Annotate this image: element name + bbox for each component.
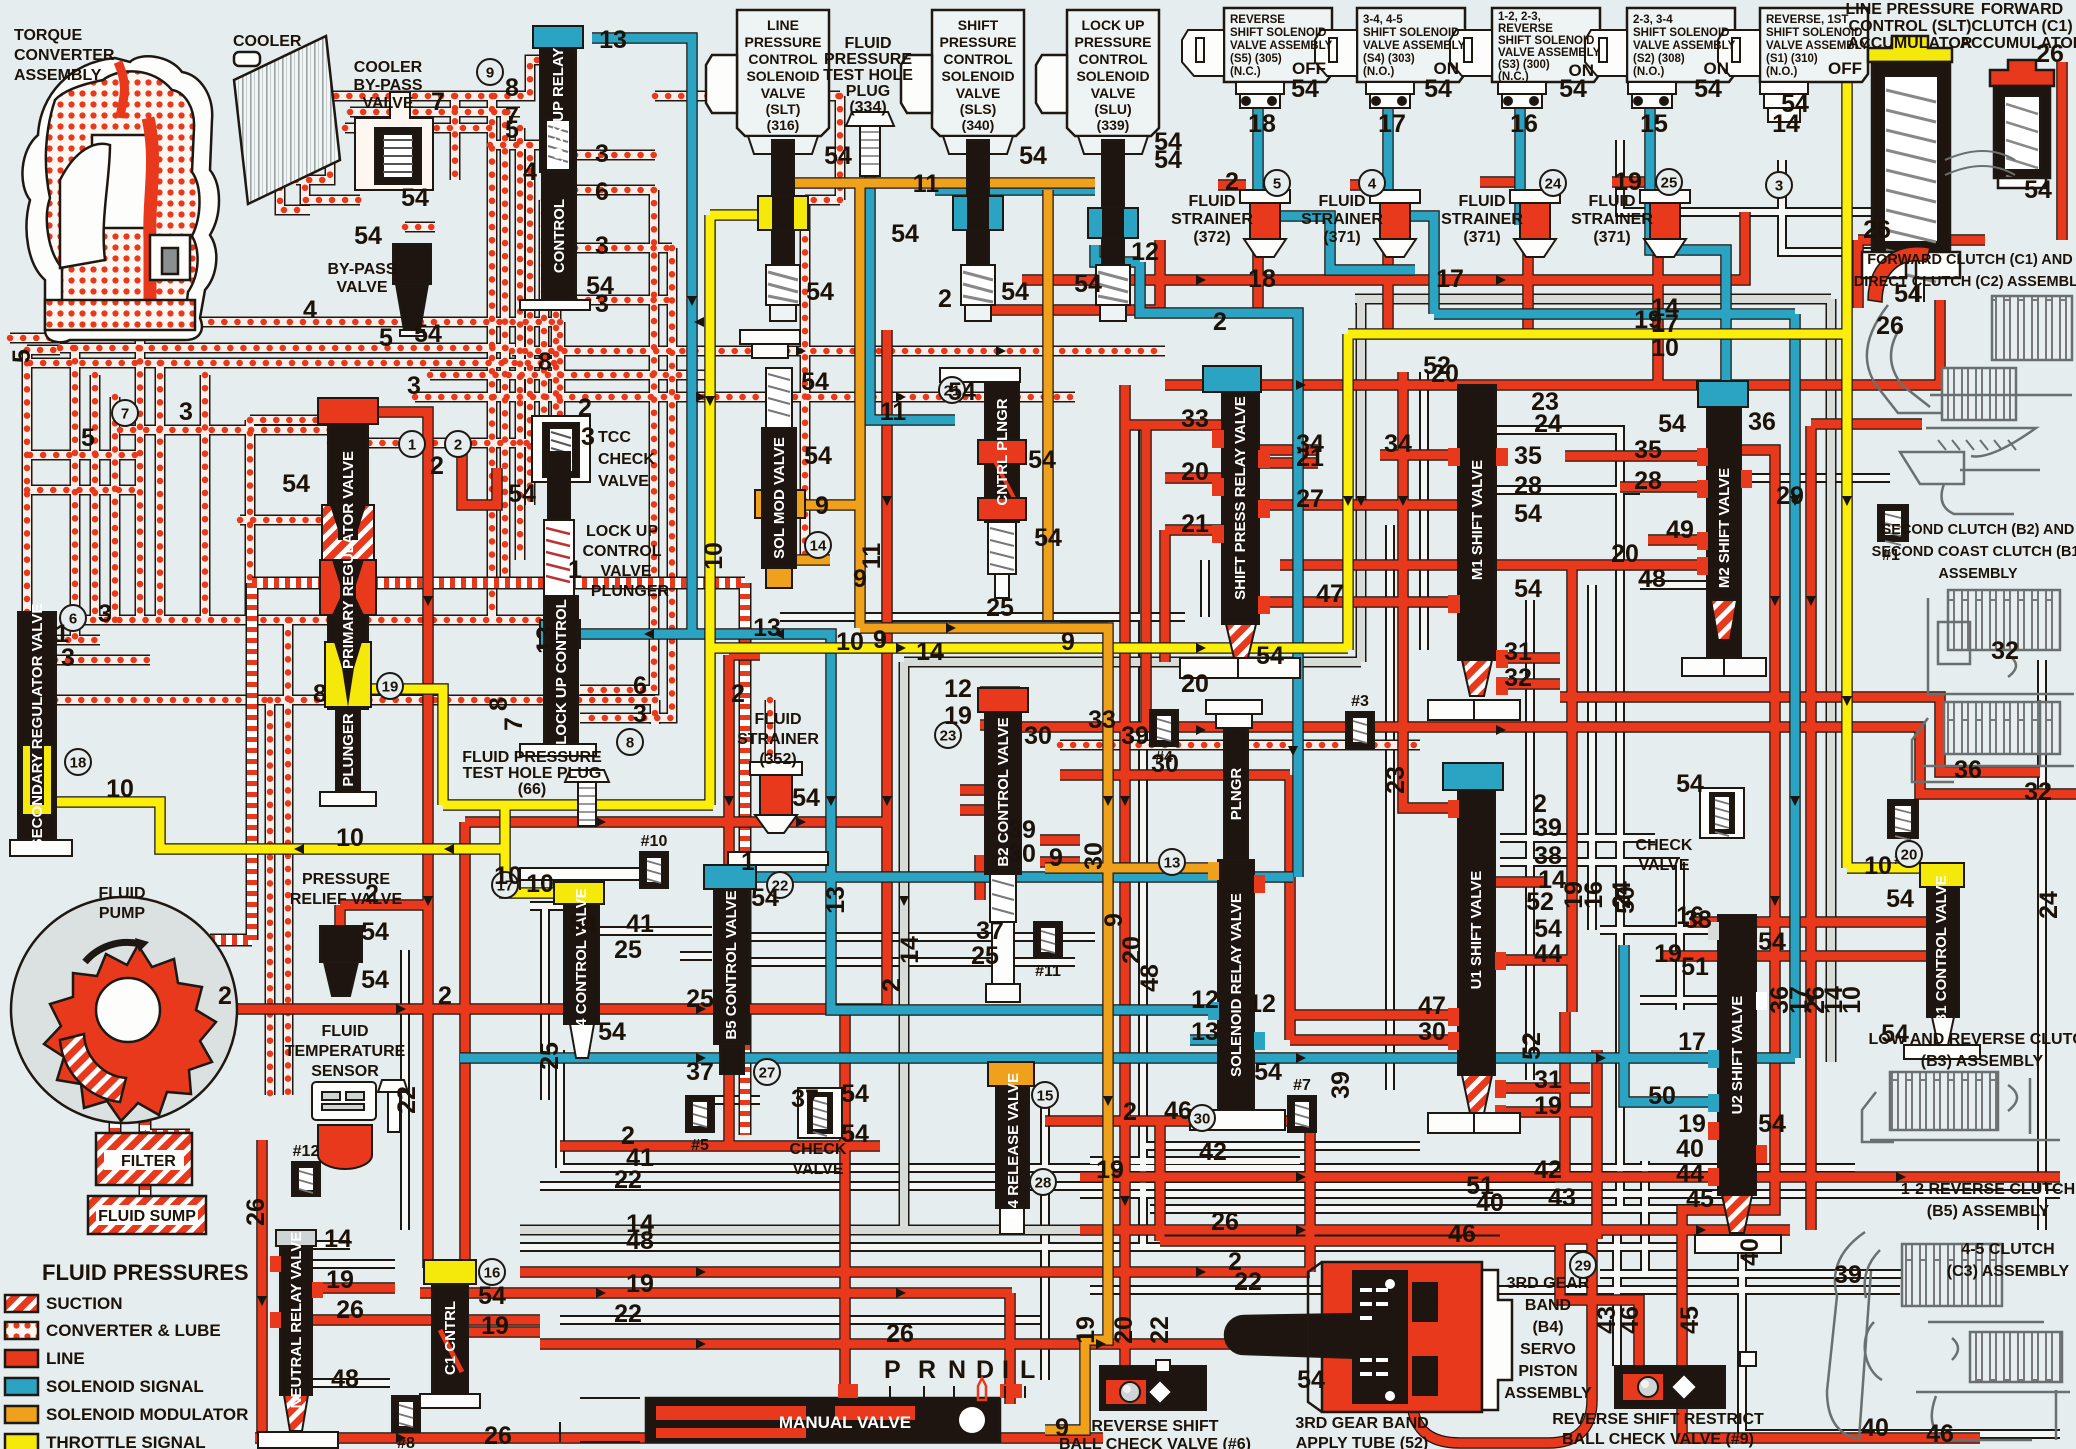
svg-text:FLUID: FLUID — [1318, 193, 1365, 210]
svg-text:10: 10 — [494, 862, 522, 890]
svg-text:LINE: LINE — [767, 17, 799, 33]
svg-text:18: 18 — [1248, 265, 1276, 293]
svg-text:30: 30 — [1418, 1018, 1446, 1046]
svg-text:SHIFT PRESS RELAY VALVE: SHIFT PRESS RELAY VALVE — [1232, 396, 1249, 600]
svg-text:54: 54 — [801, 368, 829, 396]
svg-text:54: 54 — [361, 918, 389, 946]
svg-text:#11: #11 — [1035, 963, 1061, 980]
svg-text:SHIFT SOLENOID: SHIFT SOLENOID — [1633, 27, 1729, 39]
svg-text:3: 3 — [1775, 178, 1783, 195]
svg-text:1: 1 — [408, 437, 416, 454]
svg-text:48: 48 — [331, 1365, 359, 1393]
svg-text:7: 7 — [431, 88, 445, 116]
svg-text:29: 29 — [1776, 482, 1804, 510]
svg-text:CONTROL: CONTROL — [748, 51, 818, 67]
svg-text:SERVO: SERVO — [1520, 1341, 1576, 1358]
svg-text:PRESSURE: PRESSURE — [939, 34, 1016, 50]
svg-text:2-3, 3-4: 2-3, 3-4 — [1633, 14, 1673, 26]
svg-text:SHIFT SOLENOID: SHIFT SOLENOID — [1498, 35, 1594, 47]
svg-text:CONTROL: CONTROL — [943, 51, 1013, 67]
svg-text:19: 19 — [382, 679, 399, 696]
svg-text:1: 1 — [568, 556, 582, 584]
svg-text:47: 47 — [1418, 992, 1446, 1020]
svg-text:25: 25 — [971, 942, 999, 970]
svg-text:54: 54 — [1034, 524, 1062, 552]
svg-text:VALVE: VALVE — [337, 279, 388, 296]
svg-text:VALVE ASSEMBLY: VALVE ASSEMBLY — [1498, 47, 1601, 59]
svg-text:SENSOR: SENSOR — [311, 1063, 379, 1080]
svg-text:54: 54 — [361, 966, 389, 994]
svg-text:54: 54 — [891, 220, 919, 248]
svg-text:REVERSE SHIFT: REVERSE SHIFT — [1091, 1418, 1218, 1435]
svg-text:CONTROL: CONTROL — [1078, 51, 1148, 67]
svg-text:14: 14 — [916, 638, 944, 666]
svg-text:22: 22 — [614, 1166, 642, 1194]
svg-text:FORWARD: FORWARD — [1981, 1, 2063, 18]
svg-text:10: 10 — [1838, 986, 1866, 1014]
svg-text:3: 3 — [581, 423, 595, 451]
svg-text:28: 28 — [1035, 1175, 1052, 1192]
svg-text:(372): (372) — [1193, 229, 1230, 246]
svg-text:54: 54 — [1154, 146, 1182, 174]
svg-text:54: 54 — [1758, 1110, 1786, 1138]
svg-text:4: 4 — [1368, 176, 1377, 193]
svg-text:BALL CHECK VALVE (#6): BALL CHECK VALVE (#6) — [1059, 1436, 1251, 1449]
svg-text:15: 15 — [1037, 1088, 1054, 1105]
svg-text:CONTROL (SLT): CONTROL (SLT) — [1849, 18, 1972, 35]
svg-text:52: 52 — [1518, 1032, 1546, 1060]
svg-text:PRESSURE: PRESSURE — [824, 51, 912, 68]
svg-text:16: 16 — [484, 1265, 501, 1282]
svg-text:20: 20 — [1181, 670, 1209, 698]
svg-text:CNTRL PLNGR: CNTRL PLNGR — [994, 398, 1011, 505]
svg-text:17: 17 — [1678, 1028, 1706, 1056]
svg-text:11: 11 — [880, 398, 907, 426]
svg-text:TORQUE: TORQUE — [14, 27, 82, 44]
svg-text:3: 3 — [595, 290, 609, 318]
svg-text:LOCK UP RELAY: LOCK UP RELAY — [550, 48, 567, 169]
svg-text:10: 10 — [1864, 852, 1892, 880]
svg-text:26: 26 — [1876, 312, 1904, 340]
svg-text:THROTTLE SIGNAL: THROTTLE SIGNAL — [46, 1433, 206, 1449]
svg-text:N: N — [948, 1356, 966, 1384]
svg-text:54: 54 — [1256, 642, 1284, 670]
svg-text:23: 23 — [940, 728, 957, 745]
svg-text:LOCK UP: LOCK UP — [586, 523, 658, 540]
svg-text:11: 11 — [913, 170, 940, 198]
svg-text:20: 20 — [1181, 458, 1209, 486]
svg-text:42: 42 — [1199, 1138, 1227, 1166]
svg-text:ASSEMBLY: ASSEMBLY — [1938, 566, 2018, 582]
svg-text:26: 26 — [886, 1320, 914, 1348]
svg-text:REVERSE: REVERSE — [1498, 23, 1553, 35]
svg-text:VALVE: VALVE — [363, 95, 414, 112]
svg-text:6: 6 — [633, 672, 647, 700]
svg-text:54: 54 — [1514, 500, 1542, 528]
svg-text:54: 54 — [1001, 278, 1029, 306]
svg-text:2: 2 — [878, 978, 906, 992]
svg-text:9: 9 — [1061, 628, 1075, 656]
svg-text:39: 39 — [1834, 1261, 1862, 1289]
svg-text:13: 13 — [753, 614, 781, 642]
svg-text:STRAINER: STRAINER — [1571, 211, 1653, 228]
svg-text:VALVE: VALVE — [793, 1161, 844, 1178]
svg-text:6: 6 — [69, 611, 77, 628]
svg-text:FLUID: FLUID — [844, 35, 891, 52]
svg-text:46: 46 — [1926, 1420, 1954, 1448]
svg-text:25: 25 — [686, 985, 714, 1013]
svg-text:P: P — [884, 1356, 901, 1384]
svg-text:2: 2 — [438, 982, 452, 1010]
svg-text:12: 12 — [944, 675, 972, 703]
svg-text:3: 3 — [179, 398, 193, 426]
svg-text:24: 24 — [2035, 891, 2063, 919]
svg-text:(N.O.): (N.O.) — [1633, 66, 1664, 78]
svg-text:L: L — [1020, 1356, 1035, 1384]
svg-text:35: 35 — [1634, 436, 1662, 464]
svg-text:33: 33 — [1181, 405, 1209, 433]
svg-text:30: 30 — [1024, 722, 1052, 750]
svg-text:50: 50 — [1648, 1082, 1676, 1110]
svg-text:2: 2 — [454, 437, 462, 454]
svg-text:30: 30 — [1080, 842, 1108, 870]
svg-text:54: 54 — [1781, 90, 1809, 118]
svg-text:54: 54 — [1254, 1058, 1282, 1086]
svg-text:SOLENOID: SOLENOID — [1076, 68, 1149, 84]
svg-text:33: 33 — [1088, 706, 1116, 734]
svg-text:STRAINER: STRAINER — [1301, 211, 1383, 228]
svg-text:VALVE: VALVE — [1091, 85, 1136, 101]
svg-text:(371): (371) — [1463, 229, 1500, 246]
svg-text:SOLENOID RELAY VALVE: SOLENOID RELAY VALVE — [1228, 893, 1245, 1077]
svg-text:33: 33 — [1684, 906, 1712, 934]
svg-text:54: 54 — [1886, 885, 1914, 913]
svg-text:48: 48 — [1638, 565, 1666, 593]
svg-text:26: 26 — [1211, 1208, 1239, 1236]
svg-text:8: 8 — [626, 735, 634, 752]
svg-text:2: 2 — [218, 982, 232, 1010]
svg-text:54: 54 — [1559, 75, 1587, 103]
svg-text:14: 14 — [810, 538, 827, 555]
svg-text:5: 5 — [1273, 176, 1281, 193]
svg-text:4: 4 — [523, 158, 537, 186]
svg-text:PLNGR: PLNGR — [1228, 768, 1245, 821]
svg-text:ACCUMULATOR: ACCUMULATOR — [1848, 35, 1973, 52]
svg-text:54: 54 — [841, 1080, 869, 1108]
svg-text:9: 9 — [815, 492, 829, 520]
svg-text:27: 27 — [1296, 485, 1324, 513]
svg-text:TEST HOLE: TEST HOLE — [823, 67, 913, 84]
svg-text:19: 19 — [326, 1266, 354, 1294]
svg-text:BY-PASS: BY-PASS — [353, 77, 422, 94]
svg-text:DIRECT CLUTCH (C2) ASSEMBLY: DIRECT CLUTCH (C2) ASSEMBLY — [1854, 274, 2076, 290]
svg-text:20: 20 — [1901, 847, 1918, 864]
svg-text:VALVE: VALVE — [598, 473, 649, 490]
svg-text:12: 12 — [1191, 986, 1219, 1014]
svg-text:54: 54 — [948, 378, 976, 406]
svg-text:36: 36 — [1748, 408, 1776, 436]
svg-text:TEMPERATURE: TEMPERATURE — [285, 1043, 406, 1060]
svg-text:CLUTCH (C1): CLUTCH (C1) — [1971, 18, 2072, 35]
svg-text:U2 SHIFT VALVE: U2 SHIFT VALVE — [1729, 996, 1746, 1115]
svg-text:54: 54 — [1019, 142, 1047, 170]
svg-text:(S3) (300): (S3) (300) — [1498, 59, 1550, 71]
svg-text:32: 32 — [1504, 664, 1532, 692]
svg-text:19: 19 — [626, 1270, 654, 1298]
svg-text:8: 8 — [505, 74, 519, 102]
svg-text:48: 48 — [1136, 964, 1164, 992]
svg-text:SECONDARY REGULATOR VALVE: SECONDARY REGULATOR VALVE — [29, 604, 46, 849]
svg-text:45: 45 — [1686, 1185, 1714, 1213]
svg-text:3: 3 — [595, 232, 609, 260]
svg-text:16: 16 — [1510, 110, 1538, 138]
svg-text:21: 21 — [1296, 444, 1324, 472]
svg-text:3: 3 — [407, 372, 421, 400]
svg-text:RELIEF VALVE: RELIEF VALVE — [290, 891, 403, 908]
svg-text:32: 32 — [1991, 637, 2019, 665]
svg-text:APPLY TUBE (52): APPLY TUBE (52) — [1296, 1435, 1428, 1449]
svg-text:B4 RELEASE VALVE: B4 RELEASE VALVE — [1005, 1073, 1022, 1219]
svg-text:9: 9 — [486, 65, 494, 82]
svg-text:STRAINER: STRAINER — [1441, 211, 1523, 228]
svg-text:SECOND CLUTCH (B2) AND: SECOND CLUTCH (B2) AND — [1882, 522, 2075, 538]
svg-text:#1: #1 — [1882, 547, 1900, 564]
svg-text:40: 40 — [1736, 1238, 1764, 1266]
svg-text:PRESSURE: PRESSURE — [744, 34, 821, 50]
svg-text:24: 24 — [1545, 176, 1562, 193]
svg-text:FILTER: FILTER — [121, 1153, 176, 1170]
svg-text:(316): (316) — [767, 117, 800, 133]
svg-text:STRAINER: STRAINER — [737, 731, 819, 748]
svg-text:47: 47 — [1316, 580, 1344, 608]
svg-text:M2 SHIFT VALVE: M2 SHIFT VALVE — [1716, 468, 1733, 588]
svg-text:2: 2 — [938, 285, 952, 313]
svg-text:#5: #5 — [691, 1137, 709, 1154]
svg-text:SOLENOID: SOLENOID — [941, 68, 1014, 84]
svg-text:CONTROL: CONTROL — [582, 543, 661, 560]
svg-text:7: 7 — [500, 717, 528, 731]
svg-text:18: 18 — [1248, 110, 1276, 138]
svg-text:#8: #8 — [397, 1435, 415, 1449]
svg-text:(N.C.): (N.C.) — [1498, 71, 1529, 83]
svg-text:FLUID: FLUID — [321, 1023, 368, 1040]
svg-text:54: 54 — [401, 184, 429, 212]
svg-text:5: 5 — [8, 349, 36, 363]
svg-text:44: 44 — [1534, 940, 1562, 968]
svg-text:#3: #3 — [1351, 693, 1369, 710]
svg-text:FLUID PRESSURES: FLUID PRESSURES — [42, 1260, 249, 1285]
svg-text:26: 26 — [1863, 216, 1891, 244]
svg-text:13: 13 — [532, 626, 560, 654]
svg-text:30: 30 — [1151, 750, 1179, 778]
svg-text:54: 54 — [508, 480, 536, 508]
svg-text:(S2) (308): (S2) (308) — [1633, 53, 1685, 65]
svg-text:4: 4 — [303, 296, 317, 324]
svg-text:PUMP: PUMP — [99, 905, 146, 922]
svg-text:VALVE ASSEMBLY: VALVE ASSEMBLY — [1230, 40, 1333, 52]
svg-text:SOLENOID SIGNAL: SOLENOID SIGNAL — [46, 1377, 204, 1396]
svg-text:30: 30 — [1194, 1111, 1211, 1128]
svg-text:19: 19 — [1096, 1156, 1124, 1184]
svg-text:40: 40 — [1476, 1189, 1504, 1217]
svg-text:54: 54 — [806, 278, 834, 306]
svg-text:39: 39 — [1534, 814, 1562, 842]
svg-text:41: 41 — [626, 910, 654, 938]
svg-text:TEST HOLE PLUG: TEST HOLE PLUG — [463, 765, 602, 782]
svg-text:(SLS): (SLS) — [960, 101, 997, 117]
svg-text:28: 28 — [1634, 467, 1662, 495]
svg-text:36: 36 — [1954, 756, 1982, 784]
svg-text:54: 54 — [1534, 915, 1562, 943]
svg-text:13: 13 — [599, 26, 627, 54]
svg-text:31: 31 — [1534, 1066, 1562, 1094]
svg-text:54: 54 — [414, 320, 442, 348]
svg-text:#12: #12 — [293, 1143, 320, 1160]
svg-text:(371): (371) — [1593, 229, 1630, 246]
svg-text:48: 48 — [626, 1227, 654, 1255]
svg-text:(B5) ASSEMBLY: (B5) ASSEMBLY — [1927, 1203, 2050, 1220]
svg-text:(340): (340) — [962, 117, 995, 133]
svg-text:LOCK UP: LOCK UP — [1082, 17, 1145, 33]
svg-text:20: 20 — [1110, 1316, 1138, 1344]
svg-text:LINE: LINE — [46, 1349, 85, 1368]
svg-text:17: 17 — [1378, 110, 1406, 138]
svg-text:19: 19 — [481, 1312, 509, 1340]
svg-text:46: 46 — [1164, 1097, 1192, 1125]
svg-text:44: 44 — [1676, 1160, 1704, 1188]
svg-text:1-2, 2-3,: 1-2, 2-3, — [1498, 11, 1541, 23]
svg-text:22: 22 — [614, 1300, 642, 1328]
svg-text:52: 52 — [1526, 888, 1554, 916]
svg-text:14: 14 — [324, 1225, 352, 1253]
svg-text:3: 3 — [61, 644, 75, 672]
svg-text:54: 54 — [1424, 75, 1452, 103]
svg-text:54: 54 — [598, 1018, 626, 1046]
svg-text:8: 8 — [538, 348, 552, 376]
svg-text:22: 22 — [1234, 1268, 1262, 1296]
svg-text:54: 54 — [824, 142, 852, 170]
svg-text:30: 30 — [1008, 840, 1036, 868]
svg-text:8: 8 — [485, 697, 513, 711]
svg-text:OFF: OFF — [1828, 59, 1862, 78]
svg-text:54: 54 — [1894, 280, 1922, 308]
svg-text:5: 5 — [505, 116, 519, 144]
svg-text:3RD GEAR BAND: 3RD GEAR BAND — [1295, 1415, 1428, 1432]
svg-text:13: 13 — [822, 886, 850, 914]
svg-text:54: 54 — [478, 1282, 506, 1310]
svg-text:3-4, 4-5: 3-4, 4-5 — [1363, 14, 1403, 26]
svg-text:VALVE: VALVE — [761, 85, 806, 101]
svg-text:32: 32 — [2024, 778, 2052, 806]
svg-text:13: 13 — [1191, 1018, 1219, 1046]
svg-text:40: 40 — [1861, 1414, 1889, 1442]
svg-text:52: 52 — [1423, 352, 1451, 380]
svg-text:26: 26 — [242, 1198, 270, 1226]
svg-text:54: 54 — [1074, 270, 1102, 298]
svg-text:9: 9 — [1100, 913, 1128, 927]
svg-text:(N.C.): (N.C.) — [1230, 66, 1261, 78]
svg-text:54: 54 — [282, 470, 310, 498]
svg-text:12: 12 — [1248, 990, 1276, 1018]
svg-text:4-5 CLUTCH: 4-5 CLUTCH — [1961, 1241, 2054, 1258]
svg-text:54: 54 — [1028, 446, 1056, 474]
svg-text:19: 19 — [1654, 940, 1682, 968]
svg-text:#7: #7 — [1293, 1077, 1311, 1094]
svg-text:1: 1 — [741, 848, 755, 876]
svg-text:20: 20 — [1611, 540, 1639, 568]
svg-text:2: 2 — [731, 680, 745, 708]
svg-text:46: 46 — [1616, 1306, 1644, 1334]
svg-text:SHIFT SOLENOID: SHIFT SOLENOID — [1363, 27, 1459, 39]
svg-text:(352): (352) — [759, 751, 796, 768]
svg-text:SUCTION: SUCTION — [46, 1294, 123, 1313]
svg-text:FLUID: FLUID — [754, 711, 801, 728]
svg-text:CONVERTER & LUBE: CONVERTER & LUBE — [46, 1321, 221, 1340]
svg-text:(371): (371) — [1323, 229, 1360, 246]
svg-text:(B3) ASSEMBLY: (B3) ASSEMBLY — [1921, 1053, 2044, 1070]
svg-text:VALVE ASSEMBLY: VALVE ASSEMBLY — [1363, 40, 1466, 52]
svg-text:19: 19 — [1534, 1092, 1562, 1120]
svg-text:54: 54 — [804, 442, 832, 470]
svg-text:54: 54 — [2024, 176, 2052, 204]
svg-text:BY-PASS: BY-PASS — [327, 261, 396, 278]
svg-text:50: 50 — [1612, 886, 1640, 914]
svg-text:FORWARD CLUTCH (C1) AND: FORWARD CLUTCH (C1) AND — [1867, 252, 2072, 268]
svg-text:CONTROL: CONTROL — [551, 199, 568, 273]
svg-text:(S1) (310): (S1) (310) — [1766, 53, 1818, 65]
svg-text:22: 22 — [393, 1086, 421, 1114]
svg-text:10: 10 — [700, 542, 728, 570]
svg-text:FLUID: FLUID — [98, 885, 145, 902]
svg-text:3: 3 — [98, 600, 112, 628]
svg-text:10: 10 — [106, 775, 134, 803]
svg-text:(N.O.): (N.O.) — [1363, 66, 1394, 78]
svg-text:6: 6 — [595, 178, 609, 206]
svg-text:#10: #10 — [641, 833, 668, 850]
svg-text:COOLER: COOLER — [233, 33, 302, 50]
svg-text:VALVE: VALVE — [956, 85, 1001, 101]
svg-text:25: 25 — [536, 1042, 564, 1070]
svg-text:FLUID: FLUID — [1458, 193, 1505, 210]
svg-text:CONVERTER: CONVERTER — [14, 47, 115, 64]
svg-text:12: 12 — [1131, 238, 1159, 266]
svg-text:M1 SHIFT VALVE: M1 SHIFT VALVE — [1469, 460, 1486, 580]
svg-text:SOLENOID: SOLENOID — [746, 68, 819, 84]
svg-text:(339): (339) — [1097, 117, 1130, 133]
svg-text:SOLENOID MODULATOR: SOLENOID MODULATOR — [46, 1405, 248, 1424]
svg-text:54: 54 — [792, 784, 820, 812]
svg-text:10: 10 — [526, 870, 554, 898]
svg-text:37: 37 — [686, 1058, 714, 1086]
svg-text:34: 34 — [1384, 430, 1412, 458]
svg-text:(66): (66) — [518, 781, 546, 798]
svg-text:(334): (334) — [849, 99, 886, 116]
svg-text:27: 27 — [759, 1065, 776, 1082]
svg-text:25: 25 — [614, 936, 642, 964]
svg-text:(B4): (B4) — [1532, 1319, 1563, 1336]
svg-text:NEUTRAL RELAY VALVE: NEUTRAL RELAY VALVE — [288, 1232, 305, 1409]
svg-text:54: 54 — [1694, 75, 1722, 103]
svg-text:7: 7 — [121, 406, 129, 423]
svg-text:ASSEMBLY: ASSEMBLY — [14, 67, 102, 84]
svg-text:(C3) ASSEMBLY: (C3) ASSEMBLY — [1947, 1263, 2070, 1280]
svg-text:2: 2 — [430, 452, 444, 480]
svg-text:D: D — [976, 1356, 994, 1384]
svg-text:13: 13 — [1164, 855, 1181, 872]
svg-text:39: 39 — [1327, 1071, 1355, 1099]
svg-text:16: 16 — [1580, 881, 1608, 909]
svg-text:17: 17 — [1436, 265, 1464, 293]
